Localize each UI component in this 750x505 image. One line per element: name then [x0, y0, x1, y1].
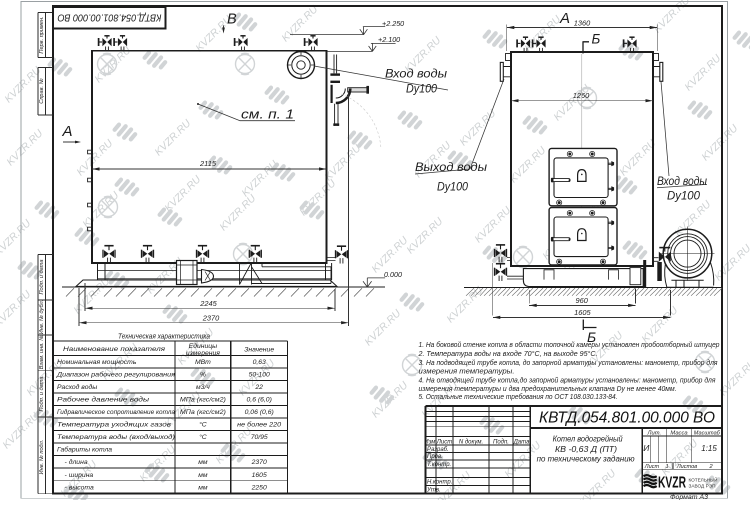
svg-text:Листов: Листов [676, 464, 697, 470]
svg-text:1. На боковой стенке котла в: 1. На боковой стенке котла в области топ… [419, 340, 720, 349]
svg-text:2. Температура воды на входе: 2. Температура воды на входе 70°С, на вы… [418, 349, 598, 358]
svg-text:Взам. инв. №: Взам. инв. № [39, 335, 45, 370]
svg-text:Габариты котла: Габариты котла [57, 446, 112, 454]
svg-text:2370: 2370 [251, 459, 267, 466]
svg-text:КОТЕЛЬНЫЙ: КОТЕЛЬНЫЙ [689, 475, 718, 482]
svg-text:В: В [227, 12, 237, 28]
svg-text:+2.100: +2.100 [378, 35, 400, 44]
svg-text:- высота: - высота [57, 485, 94, 492]
svg-text:0,6 (6,0): 0,6 (6,0) [247, 397, 272, 404]
svg-text:Температура уходящих газов: Температура уходящих газов [57, 421, 172, 429]
svg-text:0,63: 0,63 [253, 359, 266, 366]
svg-text:Выход воды: Выход воды [415, 162, 488, 174]
svg-text:Подп. и дата: Подп. и дата [39, 259, 45, 294]
svg-text:Подп. и дата: Подп. и дата [39, 376, 45, 411]
svg-text:МПа (кгс/см2): МПа (кгс/см2) [180, 397, 226, 404]
svg-text:Дата: Дата [513, 439, 530, 445]
svg-text:1: 1 [665, 464, 668, 470]
svg-text:измерения температуры.: измерения температуры. [419, 367, 515, 376]
svg-text:Лит.: Лит. [647, 431, 662, 437]
svg-text:- длина: - длина [57, 458, 88, 466]
svg-text:°С: °С [199, 433, 207, 441]
svg-text:Масса: Масса [670, 431, 688, 437]
svg-text:Подп.: Подп. [493, 439, 509, 445]
svg-text:Dy100: Dy100 [437, 182, 469, 194]
svg-text:Вход воды: Вход воды [657, 176, 707, 188]
svg-text:5. Остальные технические треб: 5. Остальные технические требования по О… [419, 392, 618, 401]
svg-text:Лист: Лист [436, 439, 452, 445]
svg-text:Т.контр.: Т.контр. [427, 462, 451, 468]
svg-text:Масштаб: Масштаб [694, 431, 721, 437]
svg-text:А: А [62, 123, 73, 140]
svg-text:Инв. № подл.: Инв. № подл. [39, 440, 45, 475]
svg-text:Температура воды (вход/выход): Температура воды (вход/выход) [57, 433, 175, 441]
svg-text:2250: 2250 [251, 485, 267, 492]
svg-text:Лист: Лист [644, 464, 660, 470]
svg-text:И: И [643, 443, 650, 453]
svg-text:960: 960 [576, 296, 589, 305]
svg-text:Перв. примен.: Перв. примен. [39, 16, 45, 53]
svg-text:Dy100: Dy100 [406, 84, 438, 96]
svg-text:Н.контр.: Н.контр. [427, 480, 452, 486]
svg-text:4. На отводящей трубе котла,д: 4. На отводящей трубе котла,до запорной … [419, 375, 716, 384]
svg-text:мм: мм [198, 485, 208, 492]
svg-text:0.000: 0.000 [384, 270, 402, 279]
svg-text:Разраб.: Разраб. [427, 447, 449, 453]
svg-text:Единицы: Единицы [189, 342, 217, 350]
svg-text:ЗАВОД РЭП: ЗАВОД РЭП [689, 484, 716, 489]
svg-text:мм: мм [198, 472, 208, 479]
svg-text:2370: 2370 [202, 313, 220, 322]
svg-text:МПа (кгс/см2): МПа (кгс/см2) [180, 409, 226, 416]
svg-text:N докум.: N докум. [459, 439, 483, 445]
svg-text:мм: мм [198, 459, 208, 466]
svg-text:°С: °С [199, 421, 207, 429]
svg-text:КВТД.054.801.00.000 ВО: КВТД.054.801.00.000 ВО [58, 11, 162, 23]
svg-text:1605: 1605 [252, 472, 267, 479]
svg-text:Вход воды: Вход воды [385, 69, 448, 81]
svg-text:1605: 1605 [574, 308, 591, 317]
svg-text:50-100: 50-100 [249, 372, 270, 379]
svg-text:м3/ч: м3/ч [196, 384, 210, 391]
svg-text:Гидравлическое сопротивление к: Гидравлическое сопротивление котла [57, 408, 175, 416]
svg-text:Расход воды: Расход воды [57, 383, 97, 391]
svg-text:А: А [559, 10, 570, 27]
svg-text:70/95: 70/95 [251, 434, 268, 441]
svg-text:не более 220: не более 220 [237, 421, 281, 429]
svg-text:Справ. №: Справ. № [39, 78, 45, 103]
svg-text:Пров.: Пров. [427, 454, 443, 460]
svg-text:1360: 1360 [574, 19, 591, 28]
svg-text:см. п. 1: см. п. 1 [241, 108, 294, 122]
svg-text:%: % [200, 372, 206, 379]
svg-text:Формат А3: Формат А3 [670, 494, 708, 500]
svg-text:1260: 1260 [573, 91, 590, 100]
svg-text:измерения: измерения [186, 350, 220, 357]
svg-text:- ширина: - ширина [57, 472, 93, 479]
svg-text:22: 22 [254, 384, 263, 391]
svg-text:KVZR: KVZR [658, 475, 686, 492]
svg-text:Изм.: Изм. [424, 439, 437, 445]
svg-text:Dy100: Dy100 [667, 191, 701, 203]
svg-text:Диапазон рабочего регулировани: Диапазон рабочего регулирования [56, 371, 175, 379]
svg-text:+2.250: +2.250 [382, 19, 404, 28]
svg-text:2115: 2115 [199, 159, 217, 168]
svg-text:Утв.: Утв. [426, 487, 441, 493]
svg-text:0,06 (0,6): 0,06 (0,6) [245, 409, 274, 416]
svg-text:Техническая характеристика: Техническая характеристика [118, 332, 210, 341]
svg-text:Рабочее давление воды: Рабочее давление воды [57, 396, 149, 404]
svg-text:1:15: 1:15 [701, 444, 717, 453]
svg-text:Инв. № дубл.: Инв. № дубл. [39, 300, 45, 334]
svg-text:Наименование показателя: Наименование показателя [63, 346, 165, 353]
svg-text:КВ -0,63 Д (ПТ): КВ -0,63 Д (ПТ) [555, 444, 617, 454]
svg-text:Значение: Значение [244, 347, 274, 354]
svg-text:МВт: МВт [195, 359, 211, 366]
svg-text:КВТД.054.801.00.000 ВО: КВТД.054.801.00.000 ВО [539, 410, 715, 427]
svg-text:Котел водогрейный: Котел водогрейный [553, 434, 623, 444]
svg-text:по техническому заданию: по техническому заданию [537, 454, 635, 464]
svg-text:Б: Б [592, 32, 601, 47]
svg-text:2245: 2245 [199, 299, 217, 308]
svg-text:Номинальная мощность: Номинальная мощность [57, 359, 137, 366]
